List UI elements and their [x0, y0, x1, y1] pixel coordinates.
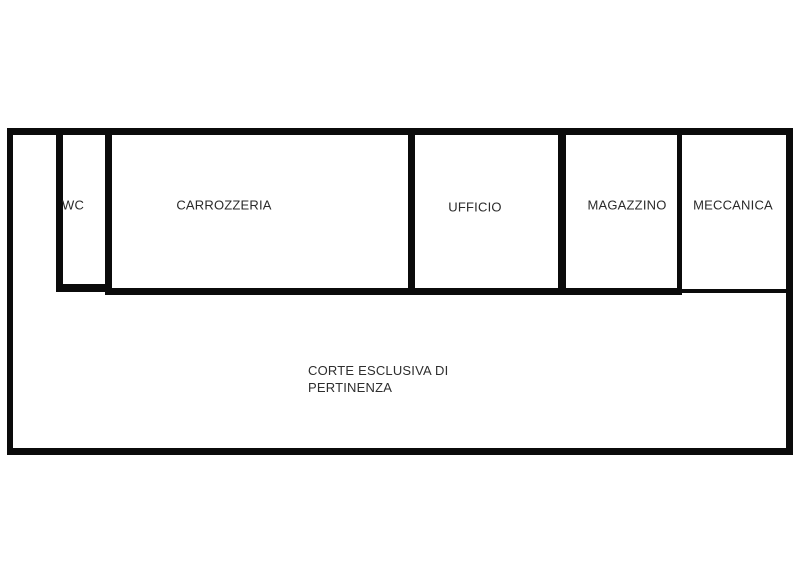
wall-outer-bottom	[7, 448, 793, 455]
room-label-meccanica: MECCANICA	[693, 198, 773, 213]
courtyard-label-line2: PERTINENZA	[308, 379, 448, 396]
room-label-carrozzeria: CARROZZERIA	[176, 198, 271, 213]
wall-wc-carrozzeria	[105, 128, 112, 295]
room-label-magazzino: MAGAZZINO	[587, 198, 666, 213]
wall-outer-left	[7, 128, 13, 455]
room-label-wc: WC	[62, 198, 84, 213]
wall-carrozzeria-ufficio	[408, 128, 415, 295]
courtyard-label: CORTE ESCLUSIVA DI PERTINENZA	[308, 362, 448, 396]
wall-meccanica-bottom	[677, 289, 793, 293]
wall-magazzino-meccanica	[677, 128, 682, 293]
courtyard-label-line1: CORTE ESCLUSIVA DI	[308, 362, 448, 379]
wall-ufficio-magazzino	[558, 128, 566, 295]
wall-wc-bottom	[56, 284, 112, 292]
floor-plan: WC CARROZZERIA UFFICIO MAGAZZINO MECCANI…	[0, 0, 800, 572]
wall-rooms-bottom	[105, 288, 682, 295]
wall-outer-top	[7, 128, 793, 135]
room-label-ufficio: UFFICIO	[448, 200, 501, 215]
